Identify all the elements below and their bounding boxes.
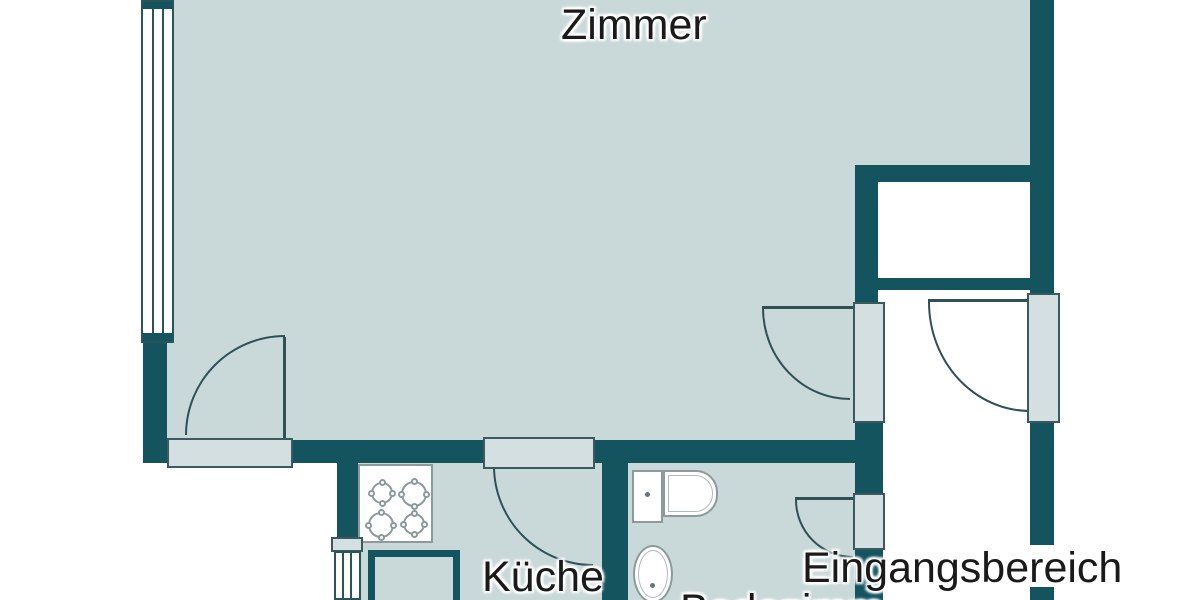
window-kueche: [334, 551, 361, 600]
door-jamb-badezimmer: [853, 493, 885, 550]
wall-kueche-left: [337, 441, 358, 537]
washbasin-drain-icon: [645, 492, 650, 497]
window-kueche-cap: [331, 537, 363, 552]
room-label-eingangsbereich: Eingangsbereich: [802, 547, 1122, 590]
wall-corridor-left-upper: [855, 165, 878, 302]
door-arc-entrance: [928, 302, 1030, 412]
room-label-badezimmer: Badezimmer: [680, 589, 921, 600]
kitchen-counter: [368, 550, 460, 600]
bathtub-inner-line: [668, 475, 713, 512]
toilet: [633, 545, 673, 600]
door-jamb-zimmer-east: [853, 302, 885, 423]
wall-zimmer-bottom-west: [293, 440, 483, 463]
wall-corridor-left-mid: [855, 423, 883, 493]
wall-right-mid: [1030, 423, 1054, 545]
stove-burner-icon: [371, 482, 393, 504]
door-leaf-entrance: [928, 299, 1030, 302]
window-mullion: [152, 2, 154, 341]
floor-plan: Zimmer Küche Eingangsbereich Badezimmer: [0, 0, 1200, 600]
stove-burner-icon: [401, 481, 427, 507]
door-leaf-zimmer-south: [283, 337, 286, 438]
stove-burner-icon: [368, 512, 394, 538]
toilet-inner-line: [638, 550, 668, 598]
door-leaf-badezimmer: [795, 497, 853, 500]
window-cap: [143, 2, 172, 9]
wall-zimmer-bottom-east: [595, 440, 855, 463]
stove: [358, 464, 433, 543]
room-label-zimmer: Zimmer: [561, 4, 707, 47]
wall-closet-bottom: [878, 278, 1033, 290]
door-jamb-kueche: [483, 437, 595, 469]
bathtub: [663, 470, 718, 517]
door-leaf-zimmer-east: [762, 306, 853, 309]
window-cap: [143, 333, 172, 341]
toilet-drain-icon: [650, 583, 655, 588]
door-jamb-zimmer-south: [167, 438, 293, 468]
wall-right-upper: [1030, 0, 1054, 293]
wall-badezimmer-left: [602, 441, 628, 600]
window-zimmer-left: [141, 0, 174, 343]
window-mullion: [342, 553, 344, 598]
window-mullion: [162, 2, 164, 341]
window-mullion: [350, 553, 352, 598]
stove-burner-icon: [403, 513, 425, 535]
room-label-kueche: Küche: [482, 556, 604, 599]
door-jamb-entrance: [1027, 293, 1060, 423]
wall-closet-top: [855, 165, 1033, 182]
